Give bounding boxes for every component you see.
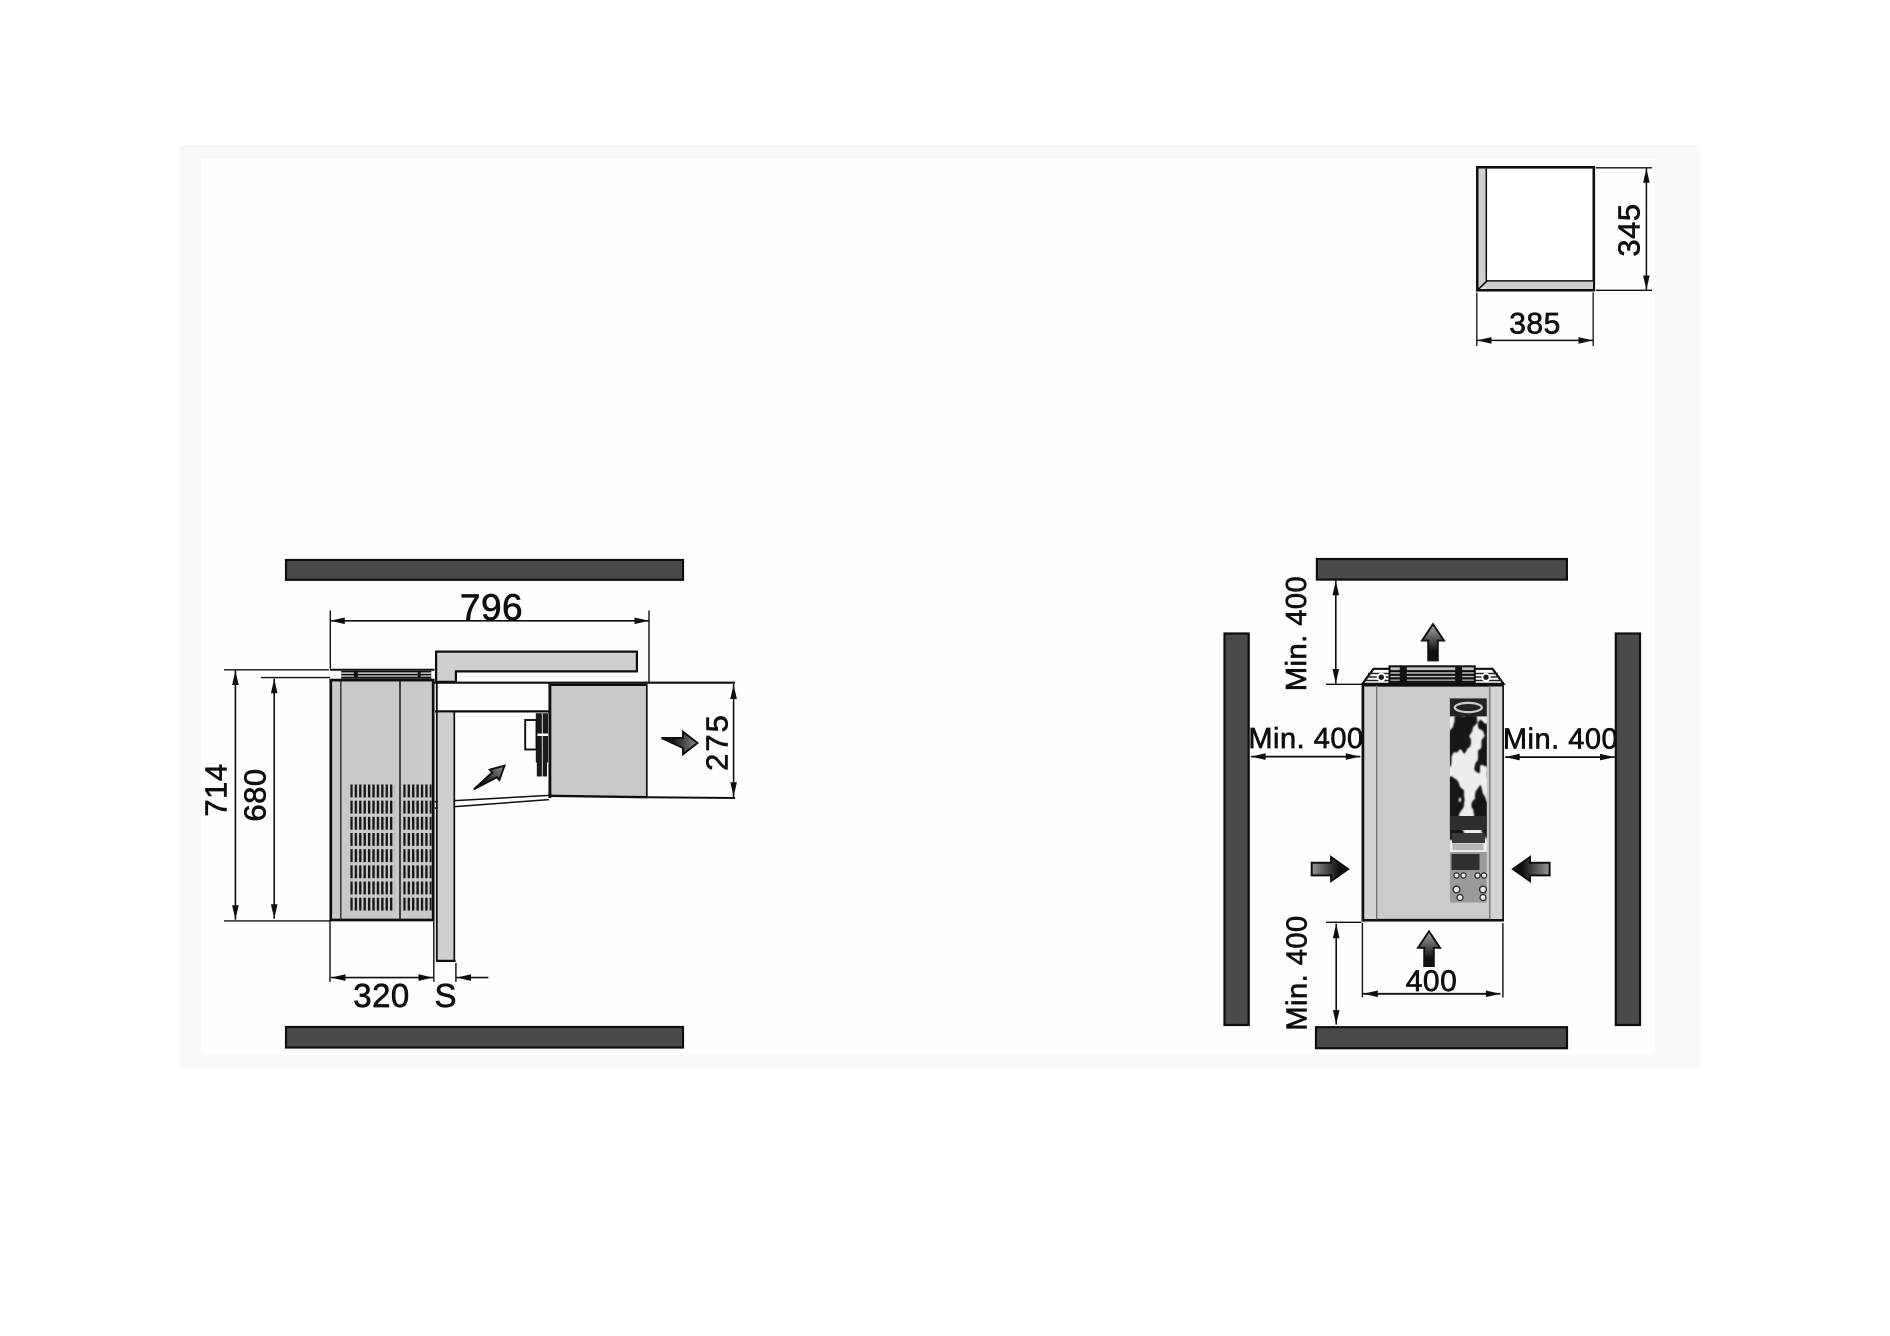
svg-text:Min. 400: Min. 400 bbox=[1281, 915, 1313, 1030]
svg-text:275: 275 bbox=[700, 713, 735, 771]
svg-text:680: 680 bbox=[238, 768, 273, 821]
svg-text:Min. 400: Min. 400 bbox=[1248, 723, 1363, 755]
svg-text:385: 385 bbox=[1509, 308, 1561, 341]
svg-text:714: 714 bbox=[199, 763, 234, 816]
svg-text:796: 796 bbox=[460, 587, 523, 628]
svg-text:Min. 400: Min. 400 bbox=[1503, 724, 1618, 756]
svg-text:400: 400 bbox=[1406, 965, 1458, 998]
svg-text:345: 345 bbox=[1612, 203, 1647, 256]
svg-text:S: S bbox=[435, 977, 458, 1014]
svg-text:320: 320 bbox=[353, 977, 410, 1014]
svg-text:Min. 400: Min. 400 bbox=[1281, 576, 1313, 691]
